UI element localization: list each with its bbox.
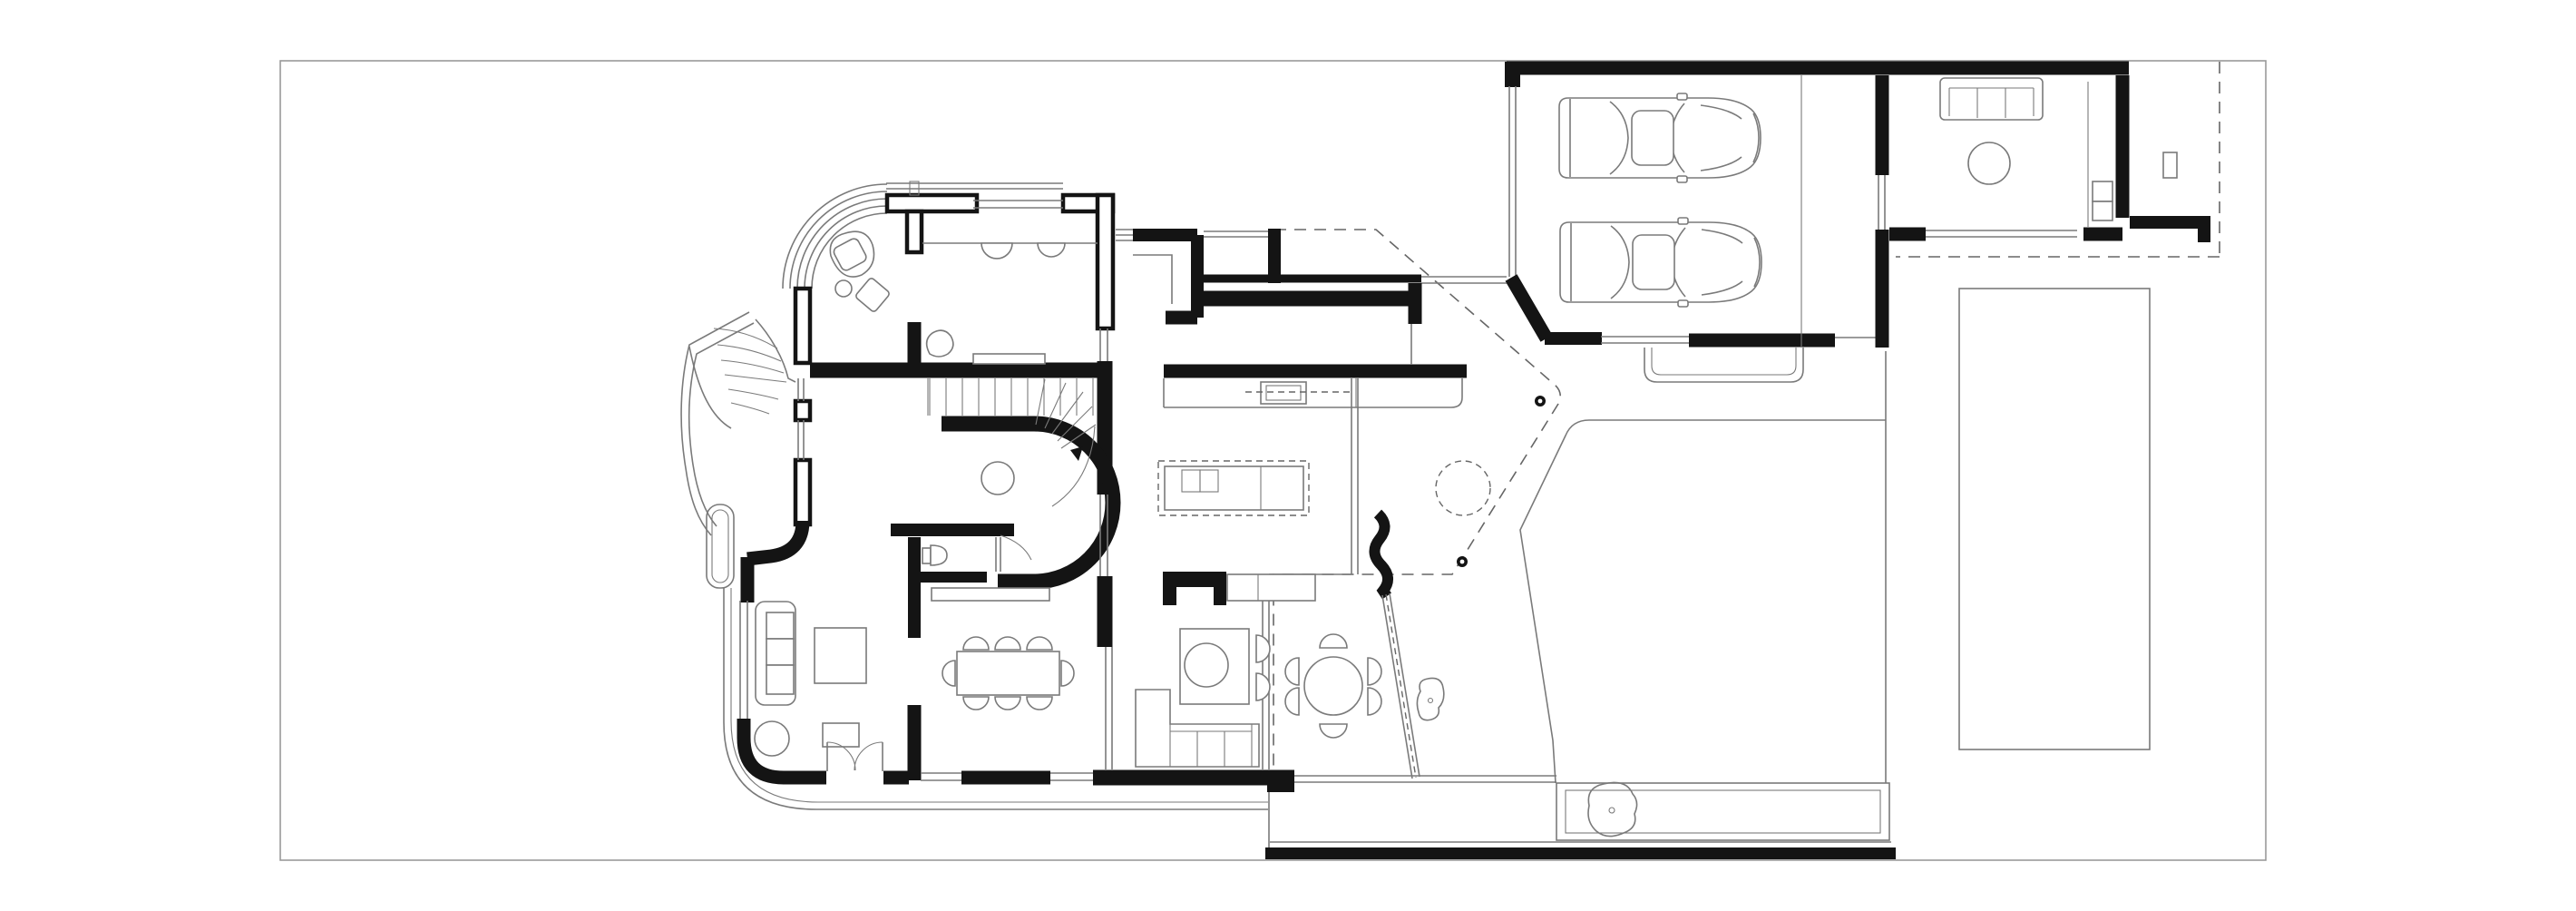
- garage-west-window: [1509, 86, 1516, 277]
- guest-wing-wall: [2130, 222, 2210, 242]
- side-table: [835, 280, 852, 297]
- column: [1457, 556, 1468, 567]
- sculptural-wall: [1374, 514, 1388, 596]
- equipment-unit: [2163, 152, 2177, 178]
- garage-angled-wall: [1511, 278, 1547, 338]
- outdoor-chair: [1368, 658, 1381, 685]
- dining-chair: [1027, 637, 1052, 650]
- outdoor-chair: [1320, 634, 1347, 648]
- dining-chair: [963, 637, 989, 650]
- garden-fence: [1374, 514, 1420, 779]
- entry-walls: [1133, 235, 1197, 318]
- toilet-bowl: [931, 545, 947, 565]
- study-furniture: [830, 231, 1098, 364]
- living-room-furniture: [755, 602, 883, 771]
- guest-round-table: [1968, 142, 2010, 184]
- garage-east-window: [1878, 175, 1885, 230]
- walkway: [1421, 277, 1507, 283]
- planter-bed: [1556, 782, 1889, 840]
- boulder: [1417, 678, 1443, 720]
- garage-apron: [1644, 348, 1803, 382]
- house-group: [681, 181, 1467, 809]
- sideboard: [1227, 574, 1315, 601]
- column: [1535, 396, 1546, 407]
- outdoor-chair: [1285, 658, 1299, 685]
- terrace-edge: [1294, 776, 1556, 782]
- round-column: [981, 462, 1014, 495]
- dining-chair: [963, 697, 989, 710]
- outdoor-table: [1304, 657, 1362, 715]
- outdoor-dining: [1285, 634, 1381, 738]
- dining-table: [957, 651, 1059, 695]
- sideboard: [932, 588, 1049, 601]
- armchair: [1256, 635, 1270, 662]
- dining-furniture: [942, 637, 1074, 710]
- car: [1560, 218, 1761, 307]
- stair-direction-arrow: [1070, 446, 1083, 461]
- dining-chair: [1027, 697, 1052, 710]
- guest-cabinet: [2093, 181, 2113, 220]
- west-jog: [747, 521, 803, 559]
- guest-sofa: [1940, 78, 2043, 120]
- round-table: [1185, 643, 1228, 687]
- outdoor-chair: [1368, 688, 1381, 715]
- stair-wall: [942, 424, 1113, 582]
- garage-door: [1601, 337, 1689, 343]
- rug: [815, 628, 866, 683]
- kitchen-island: [1158, 461, 1309, 515]
- driveway: [1265, 787, 1896, 859]
- round-chair: [755, 721, 789, 756]
- outdoor-chair: [1285, 688, 1299, 715]
- entry-step: [1133, 255, 1172, 304]
- dining-chair: [995, 697, 1020, 710]
- lawn-edge: [1520, 420, 1886, 783]
- kitchen-furniture: [1158, 378, 1462, 515]
- toilet-tank: [922, 548, 931, 563]
- dining-chair: [995, 637, 1020, 650]
- outdoor-chair: [1320, 724, 1347, 738]
- counter: [1164, 378, 1462, 407]
- side-table: [823, 723, 859, 747]
- dining-chair: [942, 661, 955, 686]
- fireplace: [1163, 572, 1226, 605]
- dining-chair: [1061, 661, 1074, 686]
- tree-canopy-dashed: [1436, 461, 1490, 515]
- lounge-chair: [927, 330, 953, 357]
- car: [1559, 93, 1761, 182]
- guest-house-group: [1889, 75, 2210, 242]
- guest-south-window: [1926, 230, 2077, 237]
- pool: [1959, 289, 2150, 749]
- armchair: [1256, 673, 1270, 700]
- floor-plan: Ground floor architectural plan with gar…: [0, 0, 2576, 911]
- desk-stool: [1038, 243, 1065, 257]
- pouf: [854, 277, 890, 312]
- insulated-walls: [795, 181, 1113, 524]
- shelf: [973, 354, 1045, 364]
- desk-stool: [981, 243, 1012, 259]
